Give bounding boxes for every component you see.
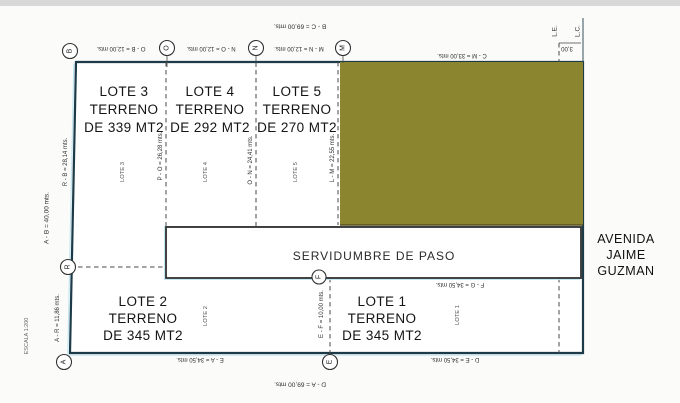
plan-canvas: SERVIDUMBRE DE PASO LOTE 3 TERRENO DE 33… (0, 0, 680, 403)
dim-l-m: L - M = 22,55 mts. (330, 134, 336, 183)
dim-d-e: D - E = 34,50 mts. (430, 356, 479, 362)
dim-n-o: N - O = 12,00 mts. (186, 45, 236, 51)
servidumbre-label: SERVIDUMBRE DE PASO (293, 249, 456, 263)
marker-a: A (57, 355, 72, 370)
dim-setback: 3,00 (561, 45, 573, 51)
marker-e-letter: E (327, 359, 334, 364)
lote1-terreno: TERRENO (348, 311, 417, 326)
lote1-name: LOTE 1 (358, 294, 407, 309)
avenue-label: AVENIDA JAIME GUZMAN (597, 232, 655, 278)
dim-a-r: A - R = 11,86 mts. (55, 294, 61, 342)
avenue-line2: JAIME (606, 248, 645, 262)
lote5-terreno: TERRENO (263, 102, 332, 117)
lote5-vertical-tag: LOTE 5 (293, 162, 299, 182)
lote4-vertical-tag: LOTE 4 (203, 161, 209, 182)
marker-n: N (249, 41, 264, 56)
label-building-line: L.E. (552, 25, 559, 37)
marker-r: R (61, 260, 76, 275)
marker-m-letter: M (340, 45, 347, 51)
marker-f-letter: F (316, 275, 323, 279)
lote2-terreno: TERRENO (109, 311, 178, 326)
top-strip (0, 0, 680, 6)
dim-o-n: O - N = 24,41 mts. (248, 135, 254, 185)
lote1-area: DE 345 MT2 (342, 328, 422, 343)
lote3-vertical-tag: LOTE 3 (120, 162, 126, 182)
marker-r-letter: R (65, 264, 72, 269)
lote2-name: LOTE 2 (119, 294, 168, 309)
marker-a-letter: A (61, 359, 68, 364)
marker-b: B (63, 44, 78, 59)
marker-e: E (323, 355, 338, 370)
lote2-vertical-tag: LOTE 2 (203, 306, 209, 326)
lote5-name: LOTE 5 (273, 84, 322, 99)
lote5-area: DE 270 MT2 (257, 120, 337, 135)
scale-label: ESCALA 1:200 (24, 318, 30, 355)
lote4-area: DE 292 MT2 (170, 120, 250, 135)
lote2-area: DE 345 MT2 (103, 328, 183, 343)
lote4-name: LOTE 4 (186, 84, 235, 99)
olive-parcel (340, 62, 583, 225)
dim-b-c: B - C = 69,00 mts. (274, 23, 327, 30)
dim-c-m: C - M = 33,00 mts. (437, 52, 487, 58)
marker-o: O (160, 41, 175, 56)
lote3-name: LOTE 3 (100, 84, 149, 99)
lote1-vertical-tag: LOTE 1 (455, 305, 461, 325)
dim-m-n: M - N = 12,00 mts. (274, 45, 324, 51)
dim-p-o: P - O = 26,28 mts. (158, 131, 164, 180)
marker-f: F (312, 270, 326, 284)
label-closure-line: L.C. (575, 25, 582, 37)
lote4-terreno: TERRENO (176, 102, 245, 117)
dim-d-a: D - A = 69,00 mts. (274, 381, 326, 388)
dim-e-f: E - F = 10,00 mts. (319, 290, 325, 338)
survey-plan-page: SERVIDUMBRE DE PASO LOTE 3 TERRENO DE 33… (0, 0, 680, 403)
lote3-area: DE 339 MT2 (84, 120, 164, 135)
dim-r-b: R - B = 28,14 mts. (63, 137, 69, 186)
marker-o-letter: O (164, 45, 171, 51)
marker-b-letter: B (67, 48, 74, 53)
dim-f-g: F - G = 34,50 mts. (435, 281, 484, 287)
dim-a-b: A - B = 40,00 mts. (44, 192, 51, 244)
dim-o-b: O - B = 12,00 mts. (96, 45, 145, 51)
avenue-line1: AVENIDA (597, 232, 655, 246)
dim-e-a: E - A = 34,50 mts. (176, 356, 224, 362)
lote3-terreno: TERRENO (90, 102, 159, 117)
avenue-line3: GUZMAN (597, 264, 654, 278)
marker-m: M (336, 41, 351, 56)
marker-n-letter: N (253, 45, 260, 50)
